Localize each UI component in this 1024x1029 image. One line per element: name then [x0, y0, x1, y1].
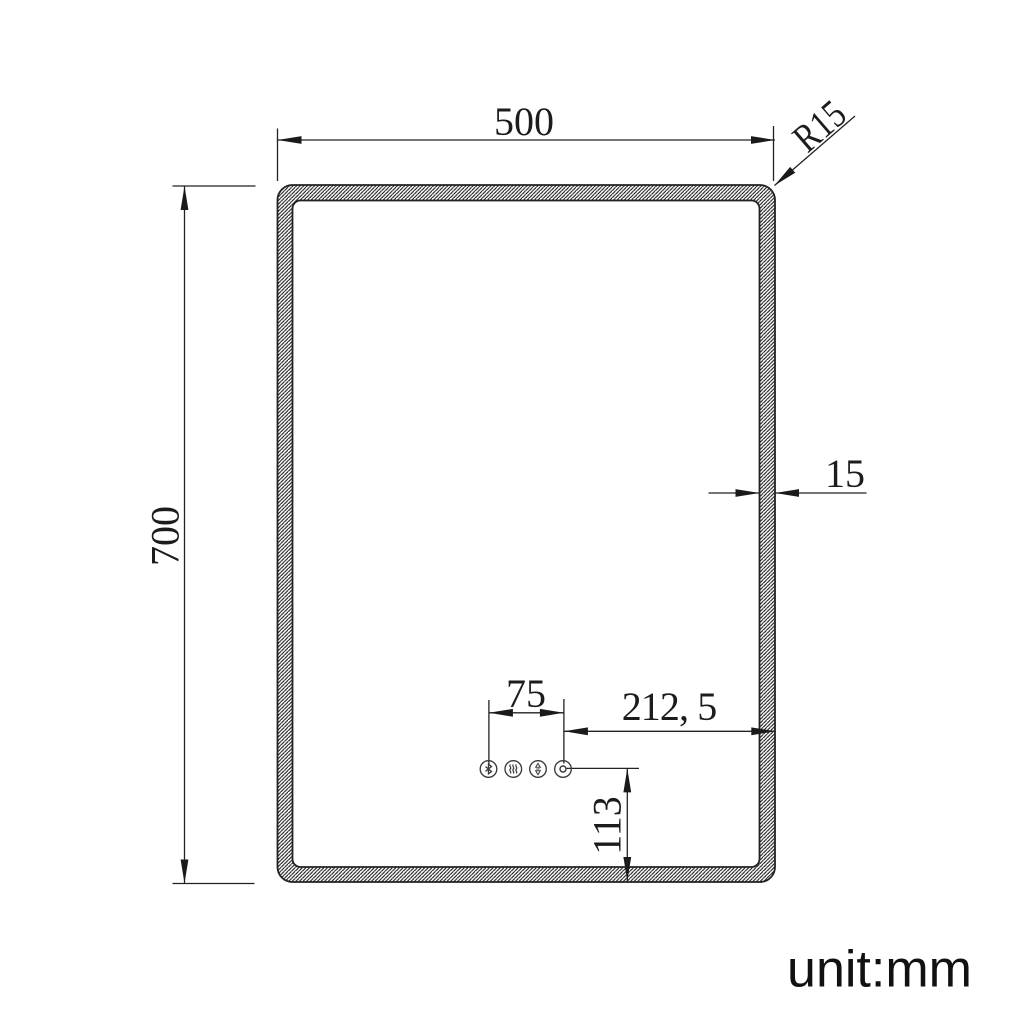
svg-text:500: 500 — [494, 99, 554, 144]
svg-text:75: 75 — [506, 671, 546, 716]
svg-text:212, 5: 212, 5 — [622, 684, 717, 729]
svg-text:unit:mm: unit:mm — [787, 941, 972, 999]
svg-text:700: 700 — [143, 506, 188, 566]
svg-text:15: 15 — [825, 451, 865, 496]
svg-text:113: 113 — [585, 796, 630, 855]
